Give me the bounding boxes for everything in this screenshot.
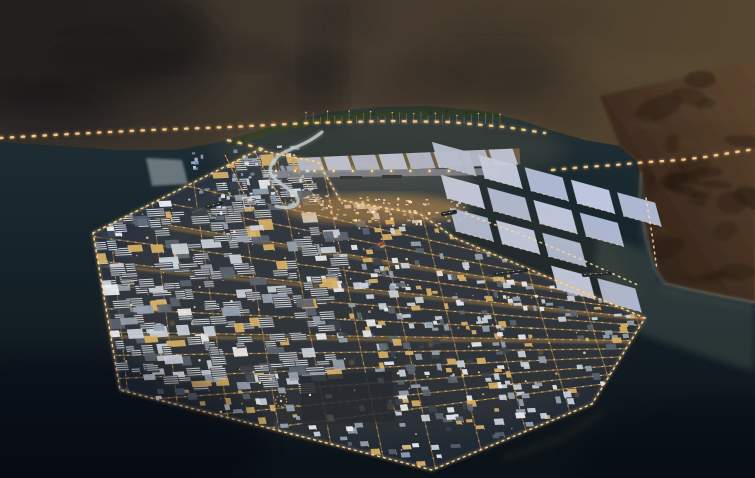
building-roof — [525, 422, 534, 427]
glow-dot — [436, 445, 438, 447]
industrial-block — [113, 224, 128, 233]
nw-building — [205, 188, 210, 190]
corner-light — [484, 428, 485, 429]
glow-halo — [574, 392, 579, 397]
tree-clump — [489, 115, 492, 118]
corner-light — [121, 236, 122, 237]
corner-light — [573, 404, 574, 405]
mast-light — [370, 111, 371, 112]
mast-light — [348, 111, 349, 112]
mast-light — [499, 114, 500, 115]
terrain-shadow — [445, 3, 602, 33]
glow-dot — [142, 213, 144, 215]
corner-light — [109, 265, 110, 266]
corner-light — [441, 457, 442, 458]
building-roof — [360, 441, 369, 446]
building-roof — [347, 442, 352, 446]
nw-building — [248, 176, 251, 178]
building-roof — [400, 452, 410, 457]
corner-light — [368, 446, 369, 447]
corner-light — [396, 453, 397, 454]
tree-clump — [480, 113, 482, 115]
building-roof — [567, 398, 575, 404]
nw-building — [194, 167, 198, 170]
headland-highlight — [705, 216, 755, 221]
beach-delta — [146, 158, 188, 186]
industrial-block — [145, 208, 166, 219]
building-roof — [431, 445, 440, 450]
building-roof — [450, 444, 461, 448]
glow-dot — [188, 199, 190, 201]
terrain-shadow — [450, 40, 555, 108]
building-roof — [540, 413, 548, 419]
corner-light — [171, 208, 172, 209]
headland-highlight — [673, 138, 710, 148]
glow-halo — [212, 190, 217, 195]
nw-building — [201, 155, 204, 159]
mast-light — [305, 112, 306, 113]
building-roof — [158, 201, 172, 208]
building-roof — [436, 454, 442, 458]
headland-highlight — [627, 116, 654, 127]
nw-building — [241, 173, 243, 176]
nw-building — [192, 152, 195, 154]
building-roof — [100, 231, 116, 239]
glow-dot — [223, 183, 225, 185]
mast-light — [478, 113, 479, 114]
nw-building — [199, 191, 204, 194]
building-roof — [388, 449, 397, 454]
glow-dot — [401, 449, 402, 450]
glow-dot — [511, 428, 512, 429]
dusk-cloud — [590, 54, 730, 86]
smoke-plume — [300, 0, 346, 130]
corner-light — [504, 436, 505, 437]
glow-dot — [200, 190, 201, 191]
building-roof — [412, 443, 420, 447]
corner-light — [503, 424, 504, 425]
corner-light — [547, 418, 548, 419]
nw-building — [232, 178, 236, 182]
building-roof — [402, 445, 411, 450]
tree-clump — [445, 109, 448, 112]
nw-building — [191, 161, 195, 164]
headland-highlight — [675, 183, 697, 187]
building-roof — [492, 434, 499, 438]
screenshot-frame — [0, 0, 755, 478]
tree-clump — [465, 112, 467, 114]
corner-light — [380, 454, 381, 455]
mast-light — [327, 111, 328, 112]
aerial-city-render — [0, 0, 755, 478]
